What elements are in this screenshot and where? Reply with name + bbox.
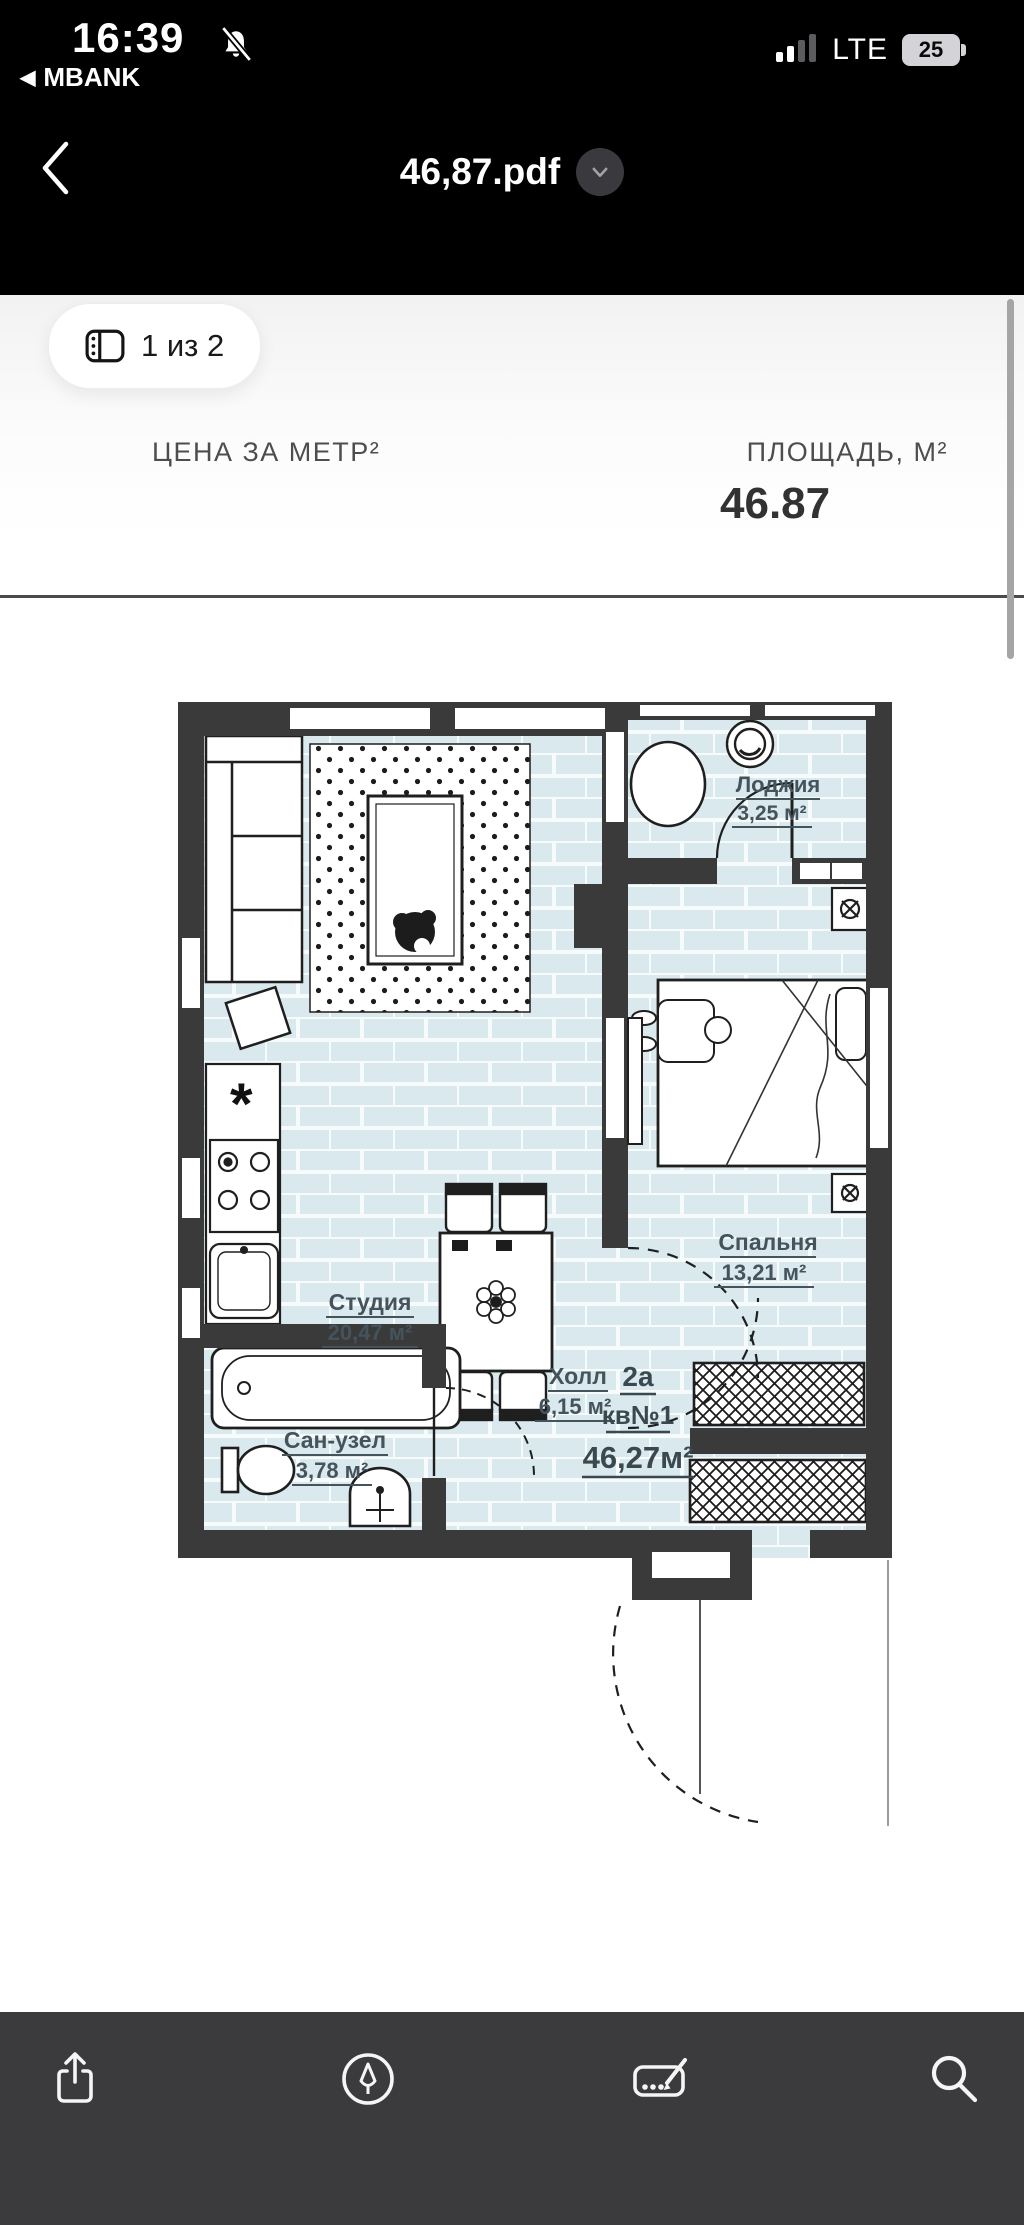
toilet: [222, 1446, 294, 1494]
search-button[interactable]: [922, 2048, 984, 2110]
markup-button[interactable]: [337, 2048, 399, 2110]
coffee-table: [368, 796, 462, 964]
apartment-unit: кв№1: [602, 1400, 674, 1430]
apartment-type: 2а: [622, 1361, 654, 1392]
room-area-studio: 20,47 м²: [328, 1320, 413, 1345]
kitchen-sink: [210, 1244, 278, 1318]
battery-icon: 25: [902, 34, 966, 66]
area-value: 46.87: [720, 479, 830, 529]
battery-percent: 25: [919, 37, 943, 63]
search-icon: [923, 2049, 983, 2109]
room-label-studio: Студия: [329, 1289, 412, 1315]
room-area-bathroom: 3,78 м²: [296, 1458, 369, 1483]
floor-plan-image: *: [170, 688, 905, 1830]
svg-text:*: *: [230, 1072, 253, 1137]
scrollbar[interactable]: [1007, 299, 1014, 659]
bell-slash-icon: [218, 26, 254, 67]
pdf-toolbar: [0, 2012, 1024, 2225]
back-to-app-button[interactable]: ◀ MBANK: [20, 62, 140, 93]
price-per-meter-label: ЦЕНА ЗА МЕТР²: [152, 437, 380, 468]
room-area-bedroom: 13,21 м²: [722, 1260, 807, 1285]
back-to-app-triangle-icon: ◀: [20, 68, 35, 88]
share-icon: [45, 2049, 105, 2109]
thumbnails-sidebar-icon: [85, 329, 125, 363]
tv-panel: [628, 1018, 642, 1144]
loggia-armchair: [631, 742, 705, 826]
signal-bars-icon: [776, 32, 818, 67]
title-menu-button[interactable]: [576, 148, 624, 196]
status-time: 16:39: [72, 14, 184, 62]
status-nav-header: 16:39 ◀ MBANK LTE 25: [0, 0, 1024, 295]
room-area-loggia: 3,25 м²: [737, 802, 806, 825]
room-label-hall: Холл: [549, 1363, 607, 1389]
apartment-total-area: 46,27м²: [583, 1440, 694, 1475]
room-label-loggia: Лоджия: [736, 772, 821, 797]
document-title: 46,87.pdf: [400, 151, 560, 193]
pdf-viewer-content: 1 из 2 ЦЕНА ЗА МЕТР² ПЛОЩАДЬ, М² 46.87: [0, 295, 1024, 2012]
signature-icon: [629, 2049, 691, 2109]
markup-pen-icon: [338, 2049, 398, 2109]
table-divider-line: [0, 595, 1024, 598]
signature-button[interactable]: [629, 2048, 691, 2110]
chevron-down-icon: [585, 157, 615, 187]
page-indicator[interactable]: 1 из 2: [48, 303, 261, 389]
loggia-plant-pot: [727, 721, 773, 767]
page-indicator-label: 1 из 2: [141, 328, 224, 364]
bed: [632, 980, 876, 1166]
wardrobe: [690, 1460, 866, 1522]
room-label-bedroom: Спальня: [718, 1229, 817, 1255]
share-button[interactable]: [44, 2048, 106, 2110]
back-to-app-label: MBANK: [43, 62, 140, 93]
room-label-bathroom: Сан-узел: [284, 1427, 386, 1453]
wardrobe: [694, 1363, 864, 1425]
network-type-label: LTE: [832, 33, 888, 67]
room-area-hall: 6,15 м²: [539, 1394, 612, 1419]
stove: [210, 1140, 278, 1232]
area-label: ПЛОЩАДЬ, М²: [747, 437, 948, 468]
status-right-cluster: LTE 25: [776, 32, 966, 67]
